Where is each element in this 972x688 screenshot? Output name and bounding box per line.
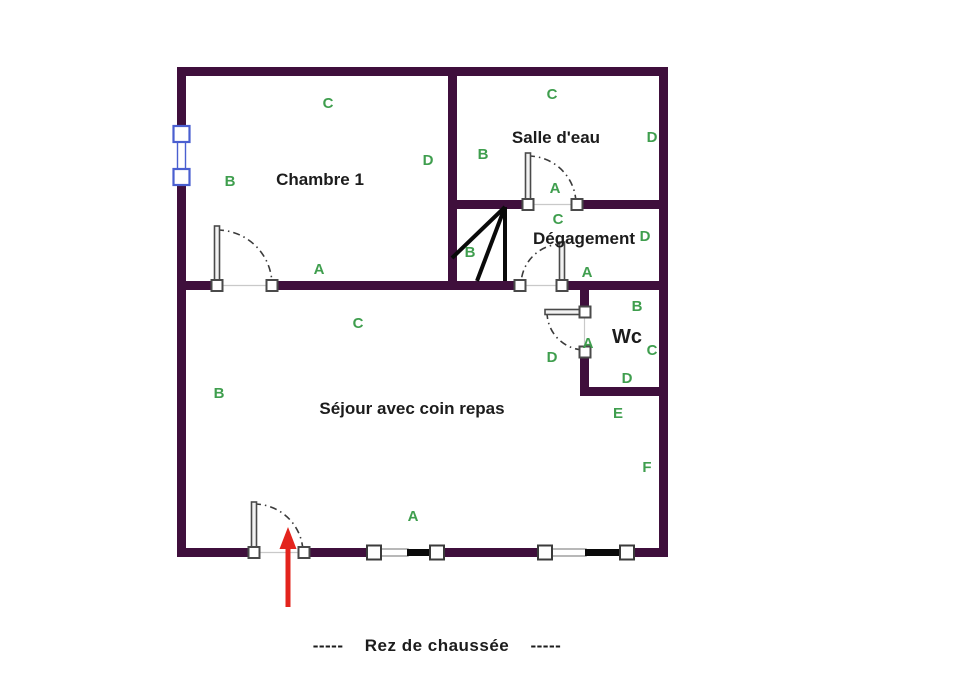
door-jamb xyxy=(299,547,310,558)
floor-caption: ----- Rez de chaussée ----- xyxy=(313,636,562,655)
wall-letter-degagement-right: D xyxy=(640,228,651,245)
window-glazing xyxy=(552,549,586,556)
door-jamb xyxy=(212,280,223,291)
room-label-wc: Wc xyxy=(612,326,642,348)
wall-south-seg2 xyxy=(303,548,367,557)
door-swing-arc xyxy=(217,230,272,285)
floorplan-drawing: Chambre 1 Salle d'eau Dégagement Wc Séjo… xyxy=(0,0,972,688)
window-frame-square xyxy=(367,546,381,560)
door-chambre1 xyxy=(212,226,278,291)
caption-dashes-left: ----- xyxy=(313,636,344,655)
caption-dashes-right: ----- xyxy=(530,636,561,655)
wall-letter-salle-left: B xyxy=(478,146,489,163)
caption-text: Rez de chaussée xyxy=(365,636,510,655)
door-leaf xyxy=(252,502,257,549)
window-solid-panel xyxy=(585,549,620,556)
wall-salle-south-right xyxy=(577,200,668,209)
door-jamb xyxy=(572,199,583,210)
wall-wc-south xyxy=(580,387,668,396)
door-degagement xyxy=(515,242,568,291)
door-jamb xyxy=(557,280,568,291)
wall-letter-wc-top: B xyxy=(632,298,643,315)
door-jamb xyxy=(580,307,591,318)
wall-letter-exterior-f: F xyxy=(642,459,651,476)
wall-letter-chambre1-right: D xyxy=(423,152,434,169)
window-solid-panel xyxy=(407,549,431,556)
door-jamb xyxy=(523,199,534,210)
wall-letter-sejour-bottom: A xyxy=(408,508,419,525)
wall-south-seg4 xyxy=(635,548,668,557)
wall-salle-south-left xyxy=(448,200,523,209)
window-glazing xyxy=(381,549,408,556)
room-label-sejour: Séjour avec coin repas xyxy=(319,399,504,418)
door-leaf xyxy=(215,226,220,281)
wall-letter-wc-bottom: D xyxy=(622,370,633,387)
room-label-chambre1: Chambre 1 xyxy=(276,170,364,189)
door-jamb xyxy=(267,280,278,291)
wall-south-seg1 xyxy=(177,548,252,557)
wall-letter-sejour-top: C xyxy=(353,315,364,332)
window-frame-square xyxy=(620,546,634,560)
wall-letter-wc-right: C xyxy=(647,342,658,359)
window-frame-square xyxy=(430,546,444,560)
window-south-2 xyxy=(538,546,634,560)
entrance-arrow xyxy=(280,527,297,607)
door-entrance xyxy=(249,502,310,558)
wall-letter-chambre1-left: B xyxy=(225,173,236,190)
door-leaf xyxy=(526,153,531,200)
wall-north xyxy=(177,67,668,76)
door-swing-arc xyxy=(521,244,562,285)
door-jamb xyxy=(249,547,260,558)
wall-east xyxy=(659,67,668,557)
floorplan-page: Chambre 1 Salle d'eau Dégagement Wc Séjo… xyxy=(0,0,972,688)
window-west-wall xyxy=(174,126,190,185)
staircase xyxy=(452,207,505,281)
window-glazing xyxy=(178,142,186,170)
entrance-arrow-head xyxy=(280,527,297,549)
wall-letter-chambre1-top: C xyxy=(323,95,334,112)
wall-letter-stairs: B xyxy=(465,244,476,261)
wall-letter-degagement-door: A xyxy=(582,264,593,281)
wall-letter-degagement-top: C xyxy=(553,211,564,228)
wall-letter-salle-right: D xyxy=(647,129,658,146)
wall-letter-chambre1-bottom: A xyxy=(314,261,325,278)
window-frame-square xyxy=(174,126,190,142)
wall-letter-salle-door: A xyxy=(550,180,561,197)
wall-sejour-north-seg2 xyxy=(272,281,520,290)
wall-south-seg3 xyxy=(445,548,538,557)
wall-letter-wc-door: A xyxy=(583,335,594,352)
wall-sejour-north-seg3 xyxy=(562,281,668,290)
door-swing-arc xyxy=(254,504,303,553)
window-frame-square xyxy=(538,546,552,560)
window-south-1 xyxy=(367,546,444,560)
wall-letter-exterior-e: E xyxy=(613,405,623,422)
wall-letter-sejour-left: B xyxy=(214,385,225,402)
room-label-degagement: Dégagement xyxy=(533,229,635,248)
room-label-salle-deau: Salle d'eau xyxy=(512,128,600,147)
wall-letter-salle-top: C xyxy=(547,86,558,103)
door-jamb xyxy=(515,280,526,291)
window-frame-square xyxy=(174,169,190,185)
wall-letter-wc-outside: D xyxy=(547,349,558,366)
